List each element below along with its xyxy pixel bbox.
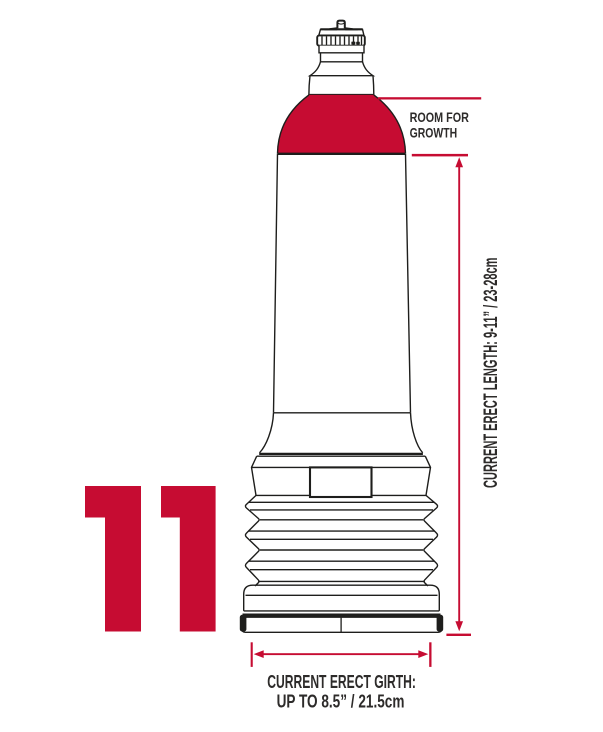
svg-text:UP TO 8.5” / 21.5cm: UP TO 8.5” / 21.5cm [277, 692, 405, 712]
svg-text:GROWTH: GROWTH [410, 125, 458, 141]
svg-text:CURRENT ERECT GIRTH:: CURRENT ERECT GIRTH: [267, 672, 416, 692]
svg-text:CURRENT ERECT LENGTH: 9-11” /: CURRENT ERECT LENGTH: 9-11” / 23-28cm [480, 258, 502, 489]
svg-text:ROOM FOR: ROOM FOR [410, 109, 469, 125]
